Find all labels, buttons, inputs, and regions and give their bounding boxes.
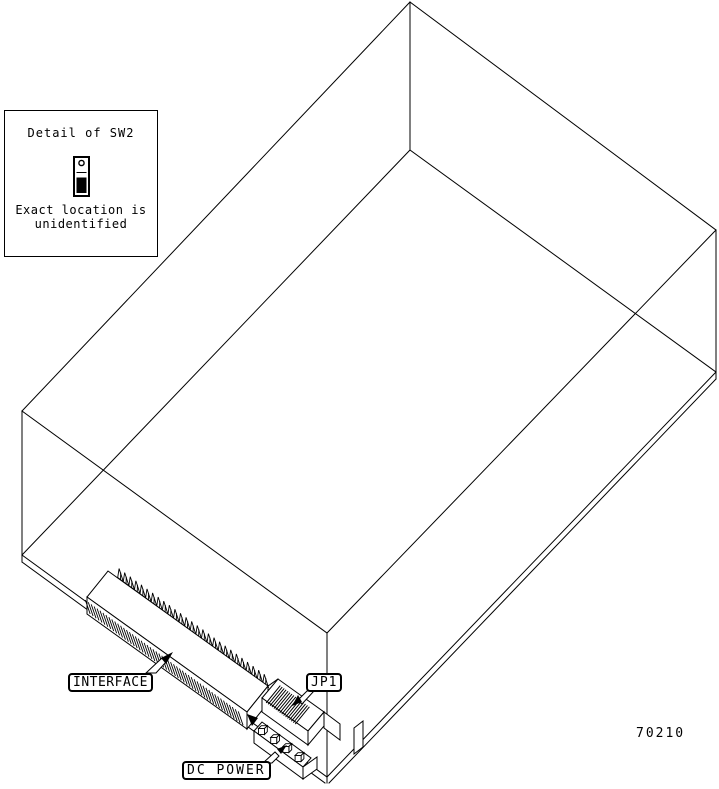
interface-connector xyxy=(86,569,269,729)
dc-power-label: DC POWER xyxy=(182,761,271,780)
power-pin-face xyxy=(295,756,301,762)
power-pin-face xyxy=(259,729,265,735)
sw2-detail-title: Detail of SW2 xyxy=(5,111,157,140)
sw2-detail-box: Detail of SW2 Exact location is unidenti… xyxy=(4,110,158,257)
figure-number: 70210 xyxy=(636,726,685,741)
power-pin-face xyxy=(271,738,277,744)
toggle-switch-icon xyxy=(73,156,90,197)
sw2-detail-note-line2: unidentified xyxy=(5,217,157,231)
technical-diagram-page: Detail of SW2 Exact location is unidenti… xyxy=(0,0,719,789)
interface-label: INTERFACE xyxy=(68,673,153,692)
jp1-end-cap xyxy=(324,712,340,740)
sw2-detail-note-line1: Exact location is xyxy=(5,203,157,217)
jp1-label: JP1 xyxy=(306,673,342,692)
